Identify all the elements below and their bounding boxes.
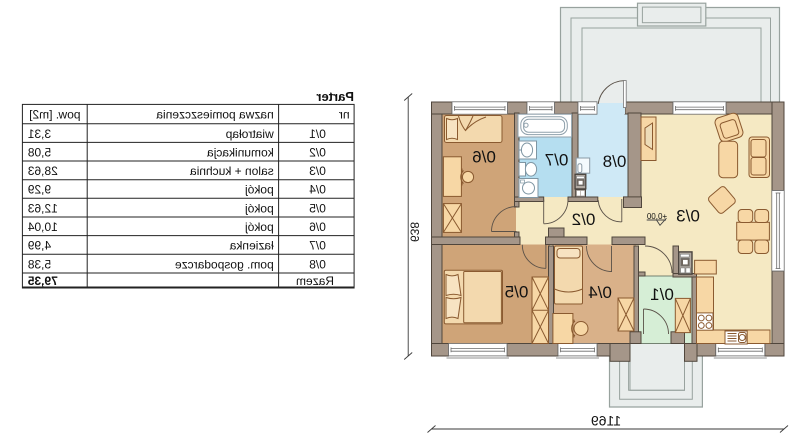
svg-text:Parter: Parter: [316, 89, 354, 104]
svg-text:3,31: 3,31: [27, 127, 51, 141]
svg-text:5,08: 5,08: [27, 145, 51, 159]
svg-text:salon + kuchnia: salon + kuchnia: [190, 164, 274, 178]
svg-text:nr: nr: [339, 108, 350, 122]
svg-text:0/7: 0/7: [309, 239, 326, 253]
svg-text:wiatrołap: wiatrołap: [225, 127, 274, 141]
svg-text:12,63: 12,63: [27, 201, 57, 215]
svg-text:pokój: pokój: [245, 220, 274, 234]
svg-text:0/1: 0/1: [650, 285, 674, 304]
svg-text:0/5: 0/5: [505, 283, 529, 302]
svg-text:pow. [m2]: pow. [m2]: [29, 108, 80, 122]
svg-text:pokój: pokój: [245, 201, 274, 215]
svg-text:0/1: 0/1: [309, 127, 326, 141]
svg-text:łazienka: łazienka: [229, 239, 273, 253]
svg-text:0/8: 0/8: [309, 257, 326, 271]
svg-text:638: 638: [407, 222, 421, 242]
svg-text:1169: 1169: [591, 413, 621, 429]
svg-text:79,35: 79,35: [27, 274, 57, 288]
svg-text:komunikacja: komunikacja: [207, 145, 274, 159]
svg-text:0/2: 0/2: [309, 145, 326, 159]
svg-text:pokój: pokój: [245, 183, 274, 197]
svg-text:0/8: 0/8: [603, 152, 627, 171]
svg-text:0/5: 0/5: [309, 201, 326, 215]
svg-text:Razem: Razem: [296, 274, 334, 288]
svg-text:9,29: 9,29: [27, 183, 51, 197]
svg-text:0/2: 0/2: [572, 210, 596, 229]
svg-text:0/6: 0/6: [472, 148, 496, 167]
svg-text:0/3: 0/3: [309, 164, 326, 178]
svg-text:pom. gospodarcze: pom. gospodarcze: [175, 257, 274, 271]
svg-text:0/6: 0/6: [309, 220, 326, 234]
svg-text:28,63: 28,63: [27, 164, 57, 178]
svg-text:4,99: 4,99: [27, 239, 51, 253]
svg-text:nazwa pomieszczenia: nazwa pomieszczenia: [156, 108, 274, 122]
svg-text:5,38: 5,38: [27, 257, 51, 271]
svg-text:0/4: 0/4: [309, 183, 326, 197]
svg-text:0/4: 0/4: [588, 283, 612, 302]
svg-text:10,04: 10,04: [27, 220, 57, 234]
svg-text:0/7: 0/7: [545, 151, 569, 170]
svg-text:0/3: 0/3: [676, 207, 700, 226]
